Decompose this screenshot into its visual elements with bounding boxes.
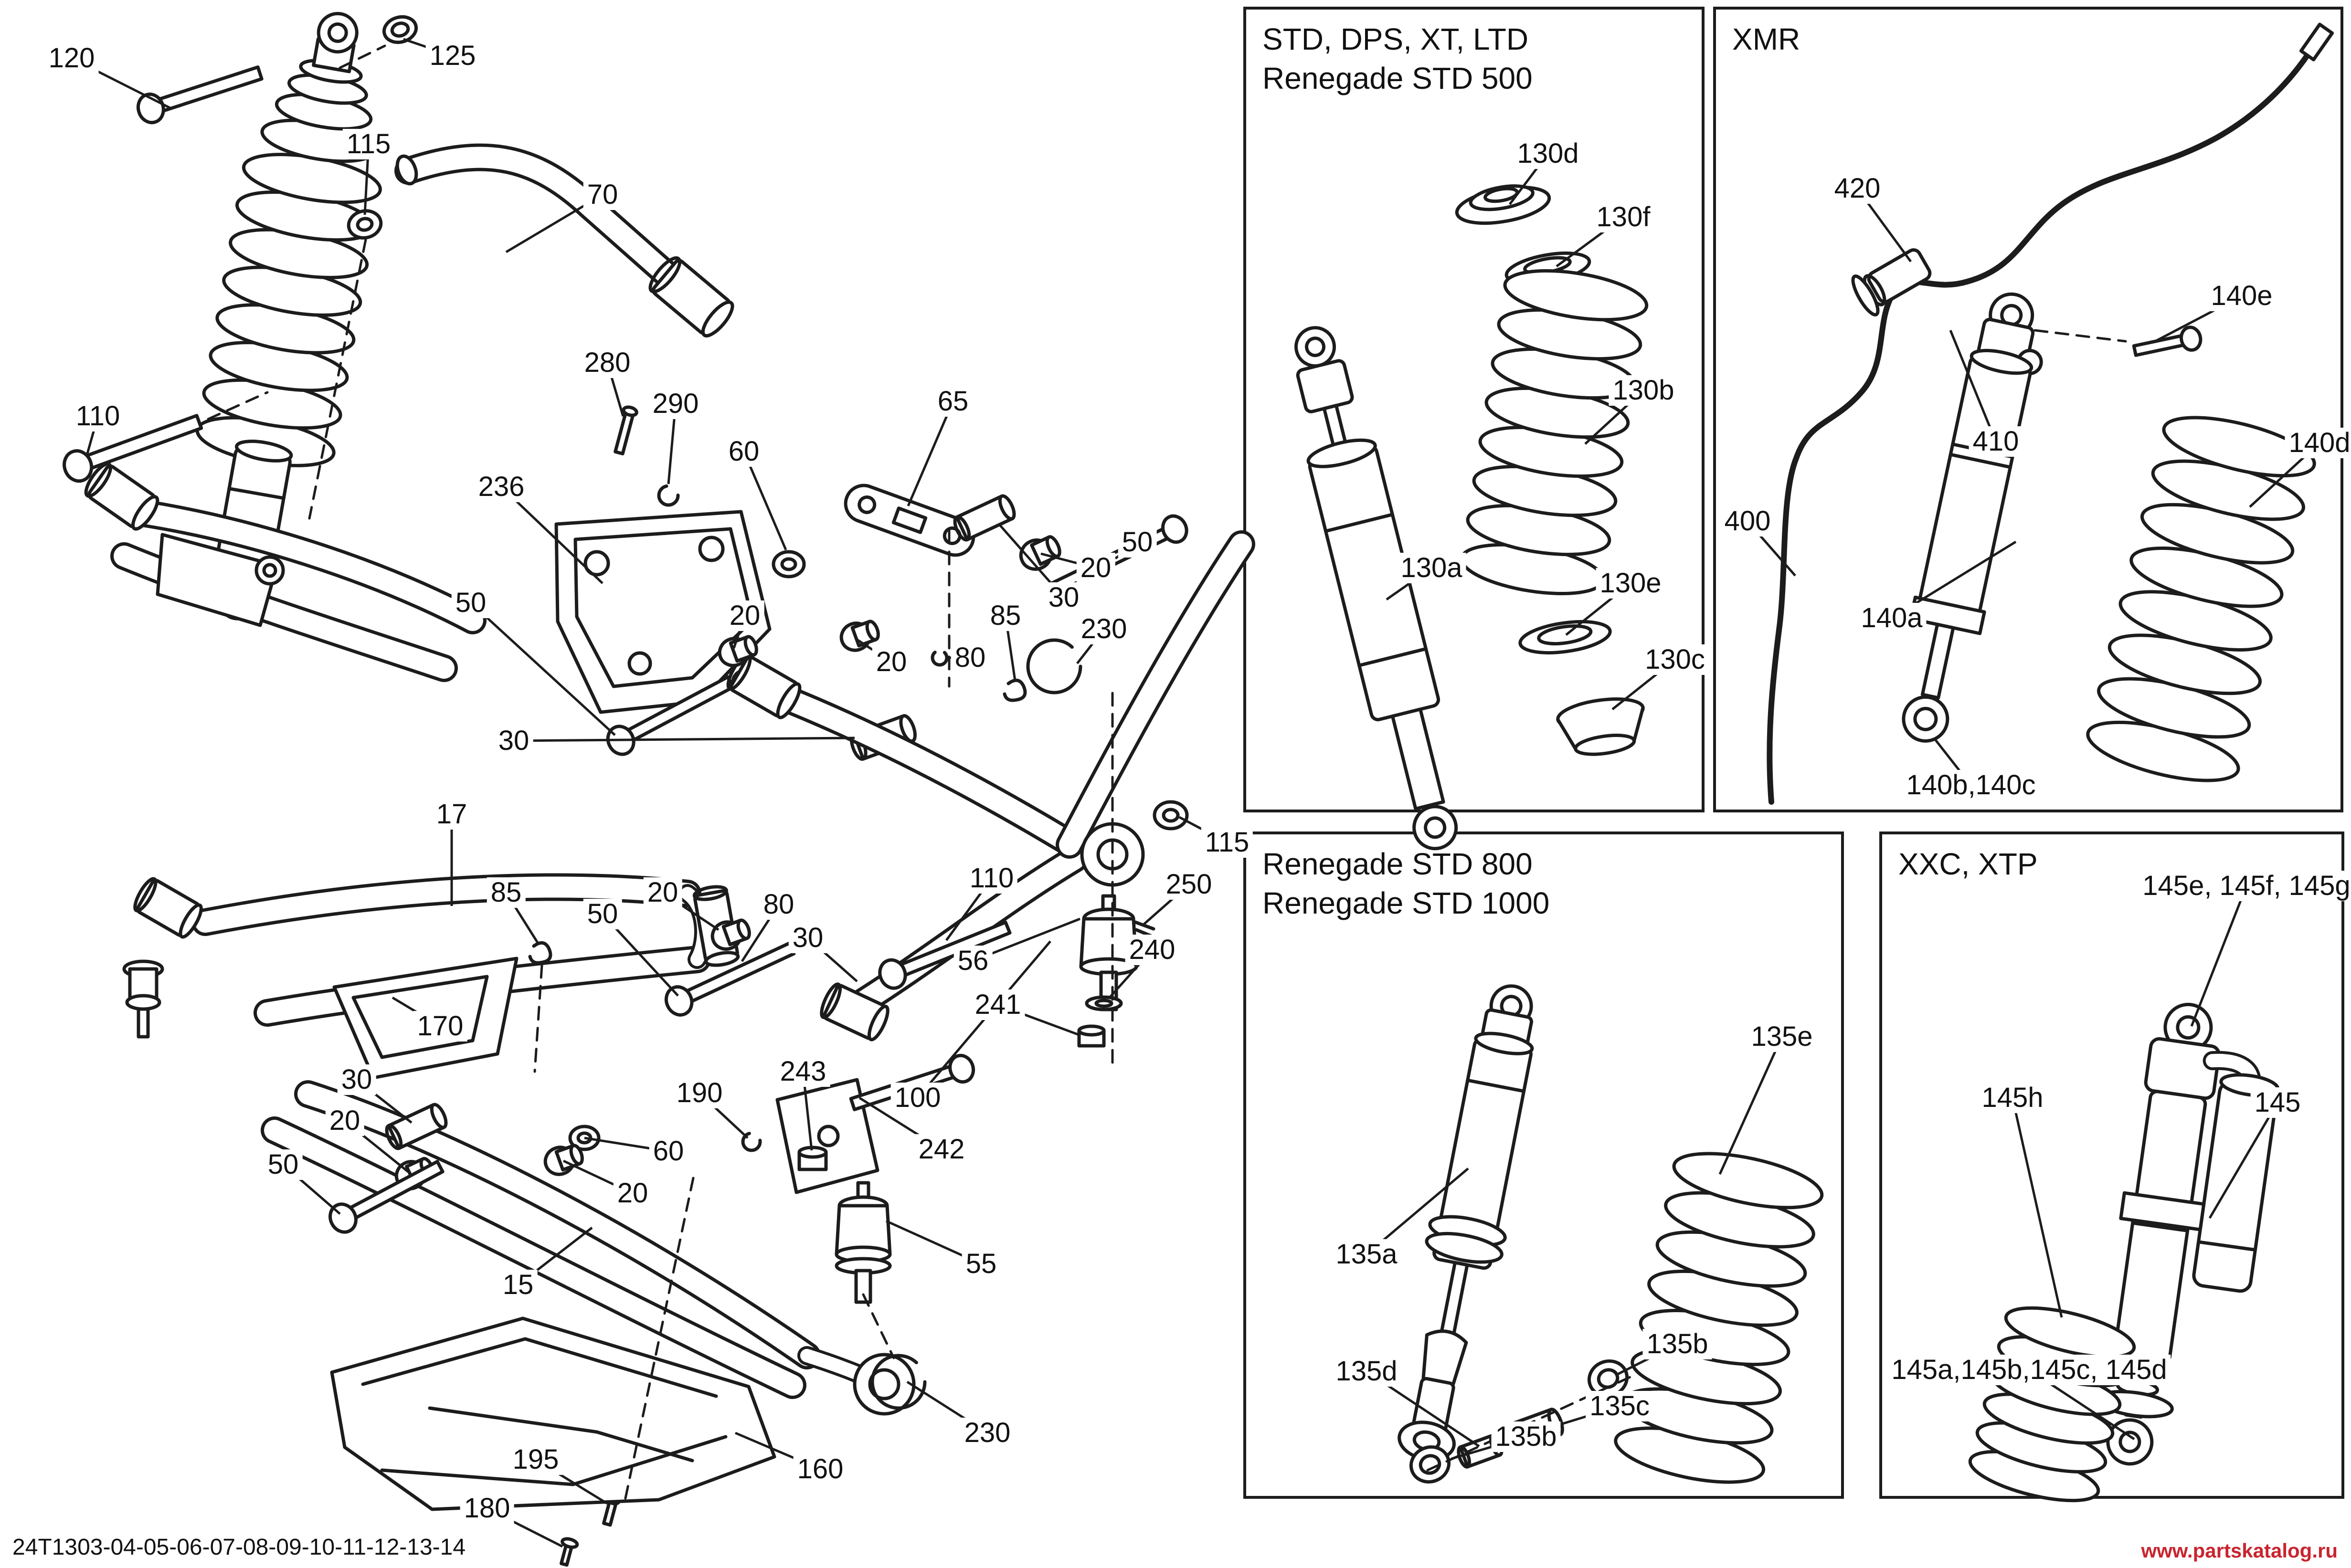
clip-85	[530, 943, 551, 963]
snap-ring-230	[1028, 640, 1080, 693]
part-callout-20: 20	[872, 647, 911, 677]
part-callout-130f: 130f	[1593, 202, 1654, 232]
upper-a-arm-100	[716, 494, 1241, 1068]
part-callout-50: 50	[452, 588, 490, 618]
part-callout-30: 30	[338, 1064, 376, 1095]
part-callout-30: 30	[495, 726, 533, 756]
swing-arm-70	[394, 154, 737, 340]
panel-std-shock	[1277, 179, 1650, 856]
part-callout-30: 30	[1045, 582, 1083, 613]
part-callout-80: 80	[951, 642, 990, 673]
spring-cap-130d	[1454, 179, 1552, 230]
part-callout-140d: 140d	[2285, 428, 2351, 458]
coil-spring-145h	[1966, 1298, 2139, 1510]
part-callout-85: 85	[986, 600, 1025, 631]
part-callout-140a: 140a	[1857, 603, 1926, 633]
part-callout-135d: 135d	[1332, 1356, 1401, 1387]
leader-line	[2192, 886, 2246, 1026]
ball-joint-55	[837, 1183, 890, 1302]
seat-ring-130e	[1518, 617, 1612, 658]
part-callout-145h: 145h	[1978, 1083, 2047, 1113]
part-callout-250: 250	[1162, 869, 1216, 900]
drawing-number: 24T1303-04-05-06-07-08-09-10-11-12-13-14	[12, 1534, 466, 1560]
part-callout-280: 280	[581, 347, 635, 378]
leader-line	[514, 738, 855, 741]
leader-line	[1720, 1037, 1782, 1174]
part-callout-240: 240	[1125, 935, 1179, 965]
part-callout-130a: 130a	[1397, 553, 1466, 583]
coil-spring-130b	[1458, 263, 1650, 602]
part-callout-120: 120	[45, 43, 99, 74]
part-callout-230: 230	[1077, 614, 1131, 644]
part-callout-290: 290	[649, 389, 703, 419]
hose-grommet-420	[1849, 242, 1935, 318]
part-callout-65: 65	[934, 386, 973, 417]
washer-115	[1154, 802, 1187, 829]
shock-135a	[1386, 979, 1552, 1466]
part-callout-130e: 130e	[1596, 568, 1665, 599]
part-callout-410: 410	[1969, 426, 2023, 457]
part-callout-241: 241	[971, 989, 1025, 1020]
shock-nut-125	[381, 13, 419, 46]
part-callout-400: 400	[1721, 506, 1775, 537]
part-callout-20: 20	[644, 877, 682, 908]
part-callout-20: 20	[726, 600, 764, 631]
lower-a-arm-15	[275, 1052, 977, 1566]
part-callout-145a-145b-145c-145d: 145a,145b,145c, 145d	[1887, 1355, 2171, 1385]
part-callout-135a: 135a	[1332, 1239, 1401, 1270]
part-callout-115: 115	[343, 129, 394, 159]
part-callout-195: 195	[509, 1444, 563, 1475]
part-callout-50: 50	[1118, 527, 1157, 558]
clip-85	[1005, 680, 1025, 700]
part-callout-130b: 130b	[1609, 375, 1678, 406]
lower-a-arm-17	[124, 876, 797, 1078]
part-callout-55: 55	[962, 1249, 1001, 1279]
part-callout-30: 30	[789, 923, 827, 953]
part-callout-60: 60	[725, 436, 763, 467]
parts-diagram-page: STD, DPS, XT, LTDRenegade STD 500XMRRene…	[0, 0, 2351, 1568]
bolt-140e	[2132, 326, 2203, 362]
washer-60	[773, 552, 804, 577]
part-callout-20: 20	[326, 1105, 364, 1136]
part-callout-145: 145	[2251, 1087, 2305, 1118]
part-callout-140e: 140e	[2207, 281, 2276, 311]
part-callout-420: 420	[1831, 173, 1885, 204]
part-callout-180: 180	[460, 1493, 514, 1524]
leader-line	[2012, 1098, 2062, 1317]
part-callout-145e-145f-145g: 145e, 145f, 145g	[2139, 871, 2351, 901]
part-callout-242: 242	[915, 1134, 969, 1165]
part-callout-100: 100	[891, 1083, 945, 1113]
part-callout-56: 56	[954, 946, 993, 976]
g-clip-80	[932, 651, 947, 665]
part-callout-15: 15	[499, 1270, 538, 1300]
part-callout-20: 20	[1077, 553, 1115, 583]
part-callout-135e: 135e	[1747, 1021, 1816, 1052]
part-callout-135b: 135b	[1642, 1329, 1712, 1359]
front-ball-joint	[124, 961, 162, 1037]
screw-180	[557, 1537, 578, 1566]
part-callout-230: 230	[961, 1418, 1015, 1448]
part-callout-130c: 130c	[1641, 644, 1709, 675]
pin-280	[613, 406, 637, 454]
part-callout-125: 125	[426, 41, 480, 71]
coil-spring-135e	[1611, 1143, 1826, 1493]
part-callout-50: 50	[264, 1149, 303, 1180]
part-callout-243: 243	[776, 1056, 830, 1087]
part-callout-135c: 135c	[1586, 1391, 1653, 1421]
part-callout-20: 20	[614, 1178, 652, 1209]
part-callout-60: 60	[649, 1136, 688, 1167]
part-callout-50: 50	[583, 899, 622, 929]
panel-xmr-shock	[1769, 24, 2332, 802]
part-callout-135b: 135b	[1491, 1421, 1560, 1452]
washer-240	[1087, 997, 1121, 1010]
part-callout-70: 70	[583, 179, 622, 210]
spring-cup-130c	[1556, 695, 1649, 759]
shock-140a	[1886, 287, 2054, 749]
part-callout-110: 110	[966, 863, 1017, 894]
part-callout-140b-140c: 140b,140c	[1903, 770, 2040, 800]
part-callout-160: 160	[794, 1454, 847, 1484]
part-callout-130d: 130d	[1513, 138, 1582, 169]
watermark: www.partskatalog.ru	[2141, 1539, 2338, 1562]
part-callout-236: 236	[475, 472, 529, 502]
nut-241	[1079, 1026, 1104, 1046]
coil-spring-140d	[2083, 406, 2320, 792]
part-callout-85: 85	[487, 877, 526, 908]
part-callout-170: 170	[413, 1011, 467, 1042]
part-callout-110: 110	[72, 401, 124, 431]
part-callout-80: 80	[760, 889, 798, 920]
part-callout-190: 190	[673, 1078, 727, 1108]
clip-290	[659, 486, 678, 505]
part-callout-17: 17	[433, 799, 471, 830]
shock-bolt-120	[135, 59, 265, 126]
leader-line	[908, 401, 953, 506]
nut-243	[799, 1147, 826, 1169]
part-callout-115: 115	[1201, 827, 1253, 858]
